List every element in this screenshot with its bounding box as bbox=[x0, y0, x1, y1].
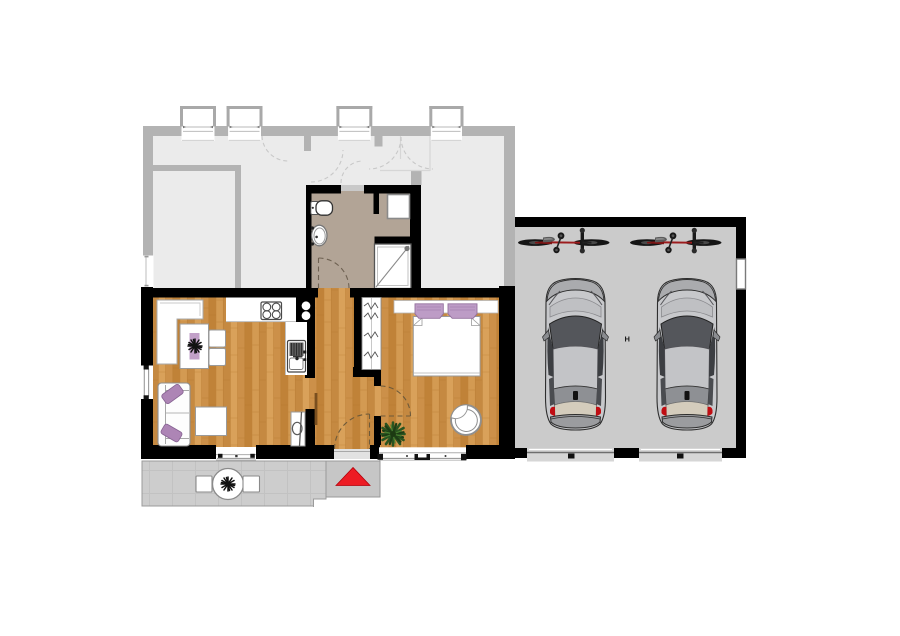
svg-text:H: H bbox=[625, 335, 630, 344]
